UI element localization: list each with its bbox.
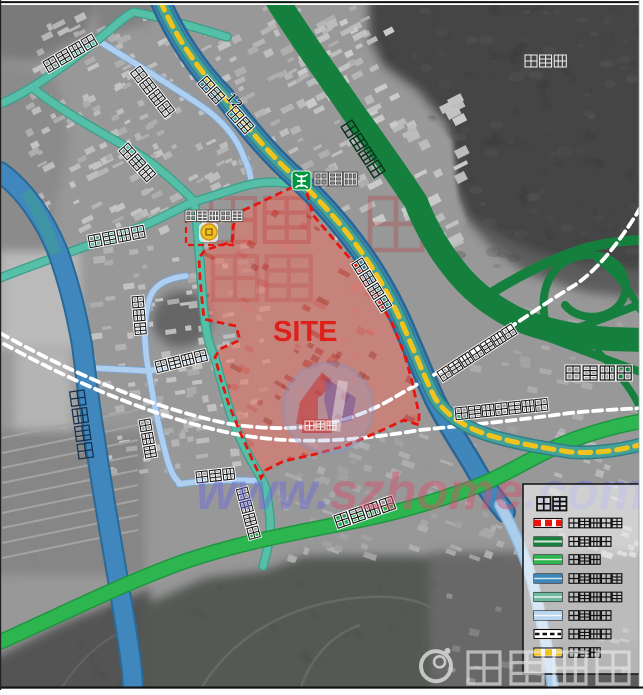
svg-text:SITE: SITE	[273, 316, 337, 348]
